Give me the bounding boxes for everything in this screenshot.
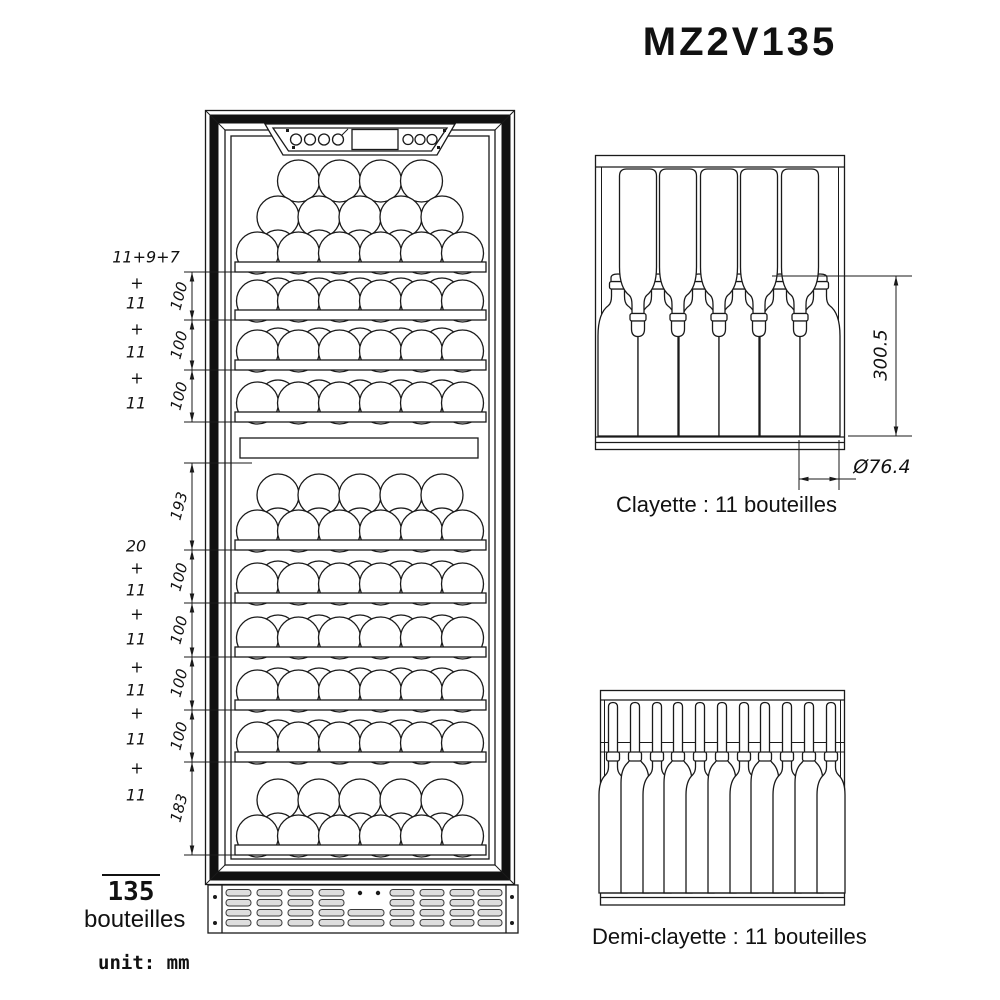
count-label: +	[130, 369, 143, 388]
bottle-shelf-row	[235, 668, 486, 712]
clayette-caption: Clayette : 11 bouteilles	[616, 492, 837, 518]
bottle-shelf-row	[235, 720, 486, 764]
count-label: 11	[126, 394, 146, 413]
count-label: +	[130, 704, 143, 723]
bottle-shelf-row	[235, 380, 486, 424]
count-label: +	[130, 274, 143, 293]
height-dim-label: 300.5	[871, 329, 892, 381]
diagram-page: MZ2V135 11+9+7 + 11 + 11 + 11 100 100 10…	[0, 0, 1000, 1000]
bottle-shelf-row	[235, 278, 486, 322]
count-label: 11	[126, 730, 146, 749]
count-label: +	[130, 559, 143, 578]
model-title: MZ2V135	[622, 20, 858, 65]
count-label: 11	[126, 581, 146, 600]
technical-diagram-canvas	[0, 0, 1000, 1000]
cabinet-front-view	[184, 111, 518, 934]
count-label: 11	[126, 681, 146, 700]
zone-divider	[240, 438, 478, 458]
capacity-count: 135	[102, 874, 160, 907]
count-label: +	[130, 759, 143, 778]
control-panel	[265, 124, 455, 155]
ventilation-base	[208, 885, 518, 933]
bottle-shelf-row	[235, 508, 486, 552]
upper-zone-shelves	[235, 160, 486, 458]
demi-clayette-caption: Demi-clayette : 11 bouteilles	[592, 924, 867, 950]
bottle-shelf-row	[235, 813, 486, 857]
clayette-top-view	[596, 156, 913, 491]
count-label: +	[130, 658, 143, 677]
bottle-shelf-row	[235, 230, 486, 274]
bottle-shelf-row	[235, 561, 486, 605]
capacity-unit: bouteilles	[84, 906, 185, 934]
demi-clayette-front-view	[599, 691, 845, 906]
count-label: 11+9+7	[112, 248, 180, 267]
bottle-shelf-row	[235, 615, 486, 659]
count-label: 11	[126, 294, 146, 313]
count-label: 11	[126, 630, 146, 649]
lower-zone-shelves	[235, 474, 486, 857]
unit-note: unit: mm	[98, 952, 190, 974]
count-label: 11	[126, 343, 146, 362]
count-label: 20	[126, 537, 146, 556]
count-label: +	[130, 320, 143, 339]
display-screen	[352, 130, 398, 150]
count-label: +	[130, 605, 143, 624]
bottle-shelf-row	[235, 328, 486, 372]
count-label: 11	[126, 786, 146, 805]
diameter-dim-label: Ø76.4	[853, 456, 910, 478]
